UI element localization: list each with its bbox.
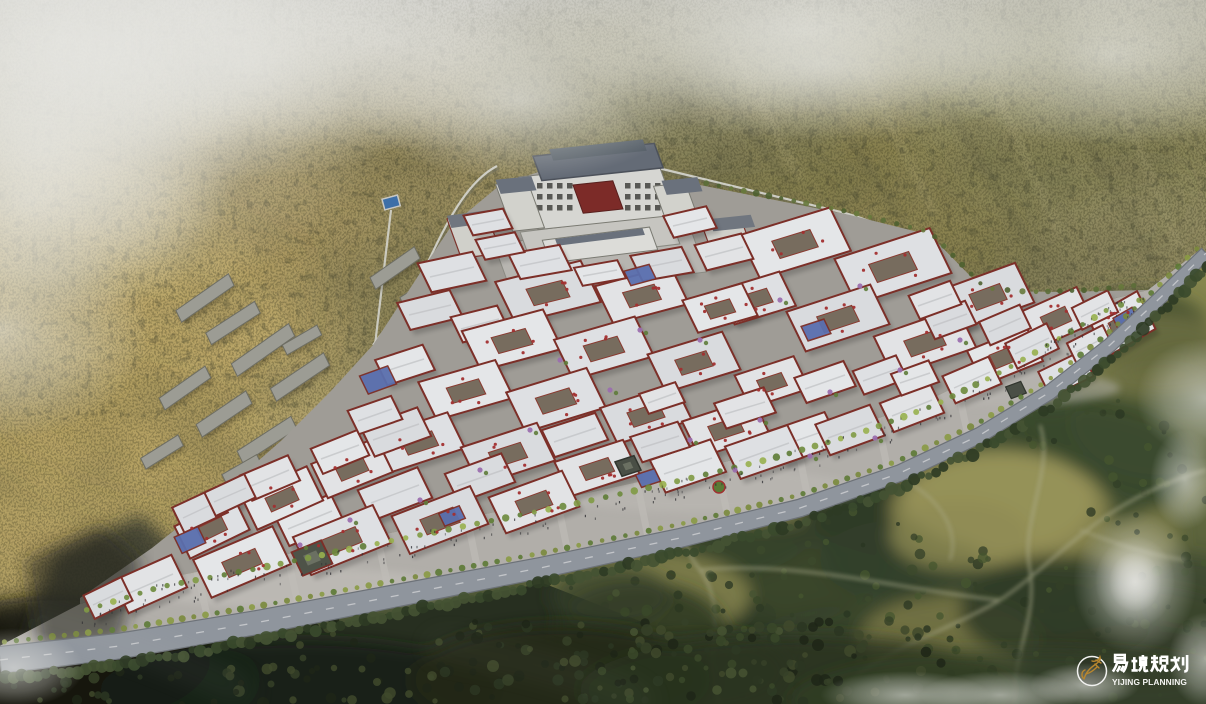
svg-text:YIJING PLANNING: YIJING PLANNING — [1112, 677, 1187, 687]
